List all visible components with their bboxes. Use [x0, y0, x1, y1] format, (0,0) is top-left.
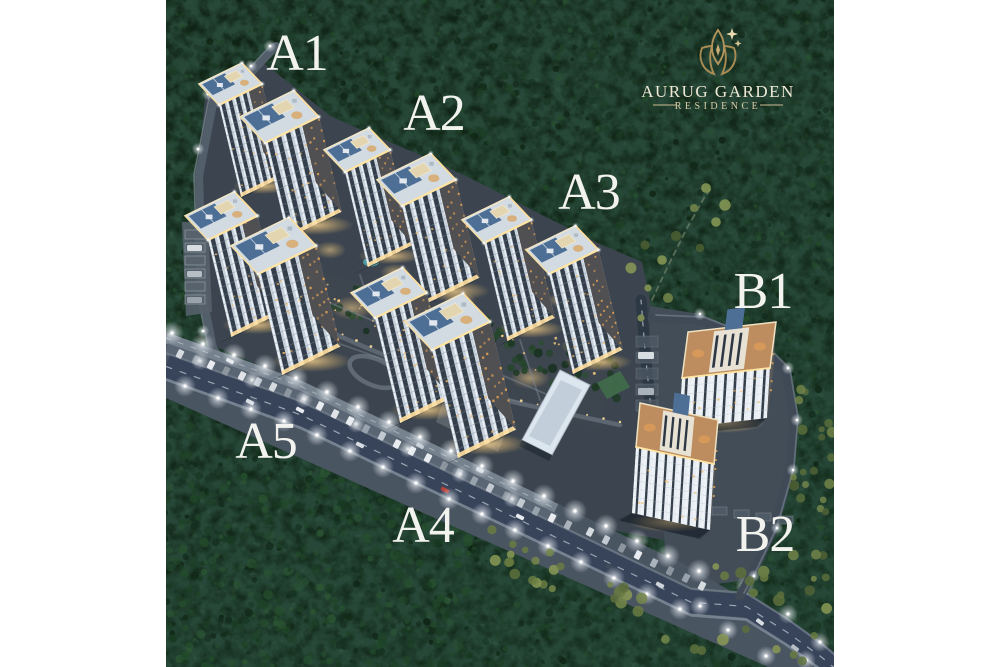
svg-text:A2: A2: [403, 85, 465, 142]
svg-text:RESIDENCE: RESIDENCE: [675, 101, 762, 112]
svg-text:B2: B2: [736, 506, 795, 563]
svg-text:A4: A4: [392, 497, 455, 554]
svg-text:A1: A1: [266, 25, 328, 82]
svg-text:A3: A3: [558, 164, 620, 221]
svg-text:A5: A5: [235, 413, 297, 470]
svg-text:AURUG GARDEN: AURUG GARDEN: [641, 82, 795, 101]
svg-text:B1: B1: [734, 263, 793, 320]
